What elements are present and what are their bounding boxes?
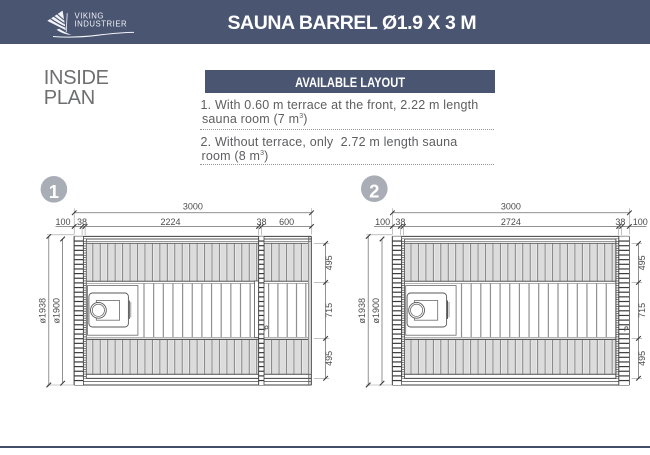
svg-text:495: 495	[324, 255, 334, 270]
svg-text:2724: 2724	[501, 217, 521, 227]
svg-text:3000: 3000	[501, 202, 521, 212]
svg-text:100: 100	[375, 217, 390, 227]
svg-text:38: 38	[615, 217, 625, 227]
svg-text:495: 495	[637, 255, 647, 270]
svg-text:495: 495	[324, 351, 334, 366]
svg-text:38: 38	[77, 217, 87, 227]
svg-text:ø1900: ø1900	[371, 298, 381, 324]
svg-text:495: 495	[637, 351, 647, 366]
svg-text:100: 100	[633, 217, 648, 227]
svg-text:100: 100	[55, 217, 70, 227]
svg-text:2: 2	[369, 180, 379, 201]
svg-text:1: 1	[49, 181, 59, 202]
svg-text:3000: 3000	[183, 202, 203, 212]
svg-text:715: 715	[324, 303, 334, 318]
svg-text:2224: 2224	[160, 217, 180, 227]
svg-text:ø1900: ø1900	[51, 298, 61, 324]
svg-text:715: 715	[637, 303, 647, 318]
svg-text:ø1938: ø1938	[38, 298, 48, 324]
svg-text:38: 38	[395, 217, 405, 227]
svg-text:38: 38	[256, 217, 266, 227]
svg-text:600: 600	[279, 217, 294, 227]
svg-text:ø1938: ø1938	[357, 298, 367, 324]
